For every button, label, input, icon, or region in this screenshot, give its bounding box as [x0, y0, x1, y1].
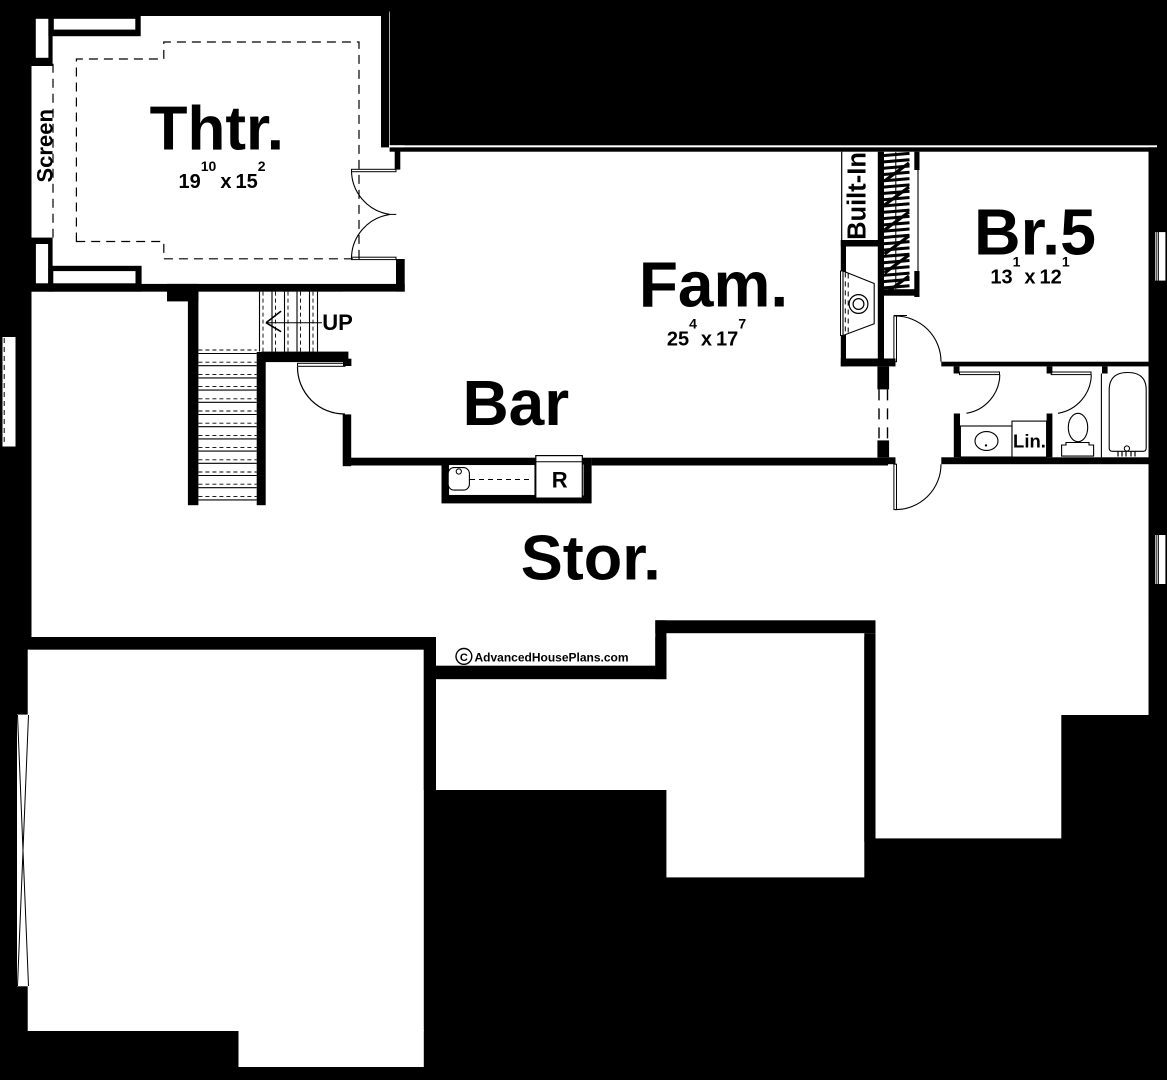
- svg-text:C: C: [460, 652, 468, 664]
- svg-text:Thtr.: Thtr.: [150, 95, 284, 164]
- svg-text:AdvancedHousePlans.com: AdvancedHousePlans.com: [475, 651, 629, 665]
- svg-text:Built-In: Built-In: [844, 152, 872, 240]
- svg-text:Bar: Bar: [462, 367, 569, 439]
- svg-text:R: R: [552, 468, 568, 493]
- svg-text:UP: UP: [322, 310, 353, 335]
- svg-text:Lin.: Lin.: [1013, 431, 1046, 452]
- svg-text:Stor.: Stor.: [521, 524, 661, 594]
- svg-text:Screen: Screen: [32, 109, 57, 182]
- svg-text:Fam.: Fam.: [639, 249, 788, 321]
- svg-text:Br.5: Br.5: [974, 197, 1096, 269]
